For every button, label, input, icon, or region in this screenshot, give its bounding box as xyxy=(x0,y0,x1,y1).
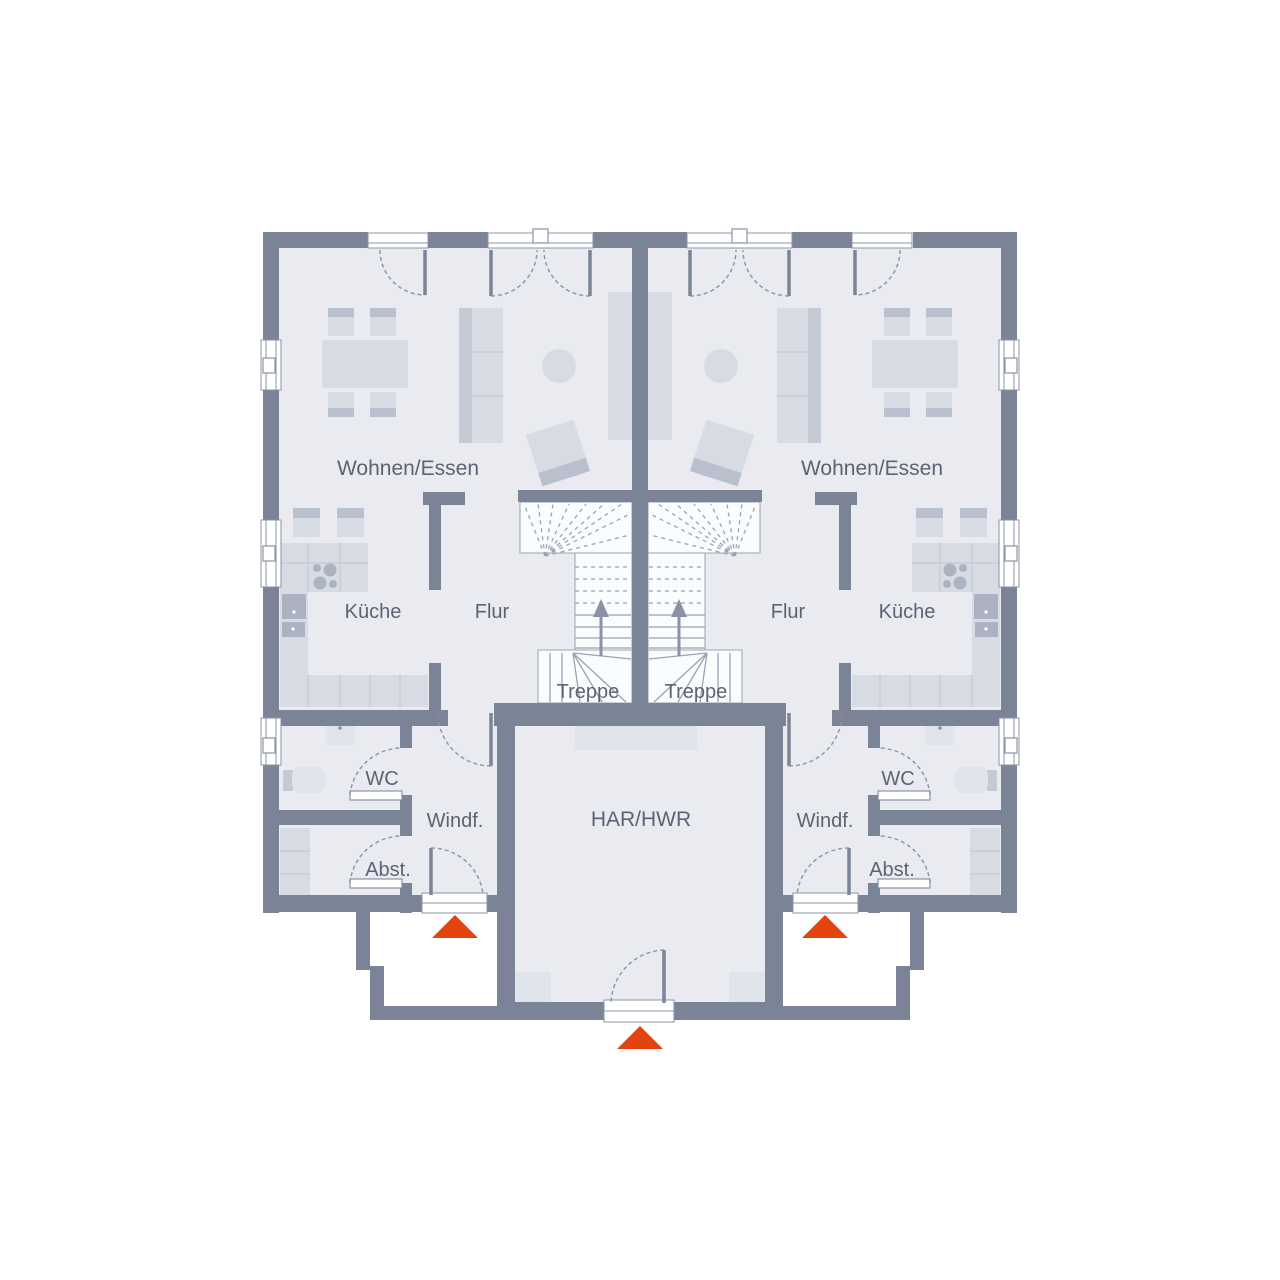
room-floor-utility xyxy=(515,718,765,1002)
room-label-storage-right: Abst. xyxy=(869,859,915,881)
entrance-arrow-icon-right xyxy=(802,915,848,938)
room-label-wc-left: WC xyxy=(365,768,398,790)
dining-table-left xyxy=(322,340,408,388)
room-label-vestibule-left: Windf. xyxy=(427,810,484,832)
coffee-table-right xyxy=(704,349,738,383)
storage-shelf-right xyxy=(970,828,1000,897)
toilet-tank-left xyxy=(283,770,293,791)
room-label-vestibule-right: Windf. xyxy=(797,810,854,832)
floor-plan-page: Wohnen/Essen Wohnen/Essen Küche Küche Fl… xyxy=(0,0,1280,1280)
sofa-left xyxy=(459,308,503,443)
sideboard-right xyxy=(648,292,672,440)
dining-table-right xyxy=(872,340,958,388)
room-label-stairs-right: Treppe xyxy=(665,681,728,703)
room-label-living-left: Wohnen/Essen xyxy=(337,457,479,480)
room-label-wc-right: WC xyxy=(881,768,914,790)
room-label-hall-left: Flur xyxy=(475,601,510,623)
porch-wall-left xyxy=(356,912,370,970)
window-wc-left xyxy=(261,718,281,765)
room-label-storage-left: Abst. xyxy=(365,859,411,881)
room-label-kitchen-left: Küche xyxy=(345,601,402,623)
window-wc-right xyxy=(999,718,1019,765)
floor-plan: Wohnen/Essen Wohnen/Essen Küche Küche Fl… xyxy=(0,0,1280,1280)
sofa-right xyxy=(777,308,821,443)
room-label-kitchen-right: Küche xyxy=(879,601,936,623)
kitchen-appliance-right xyxy=(974,594,998,619)
entrance-arrow-icon-left xyxy=(432,915,478,938)
toilet-right xyxy=(955,767,988,793)
sideboard-left xyxy=(608,292,632,440)
toilet-tank-right xyxy=(987,770,997,791)
toilet-left xyxy=(292,767,325,793)
window-kitchen-right xyxy=(999,520,1019,587)
storage-shelf-left xyxy=(280,828,310,897)
window-living-left xyxy=(261,340,281,390)
porch-wall-right xyxy=(910,912,924,970)
window-living-right xyxy=(999,340,1019,390)
kitchen-appliance-left xyxy=(282,594,306,619)
room-label-utility: HAR/HWR xyxy=(591,808,691,831)
room-label-stairs-left: Treppe xyxy=(557,681,620,703)
party-wall xyxy=(632,248,648,726)
room-label-living-right: Wohnen/Essen xyxy=(801,457,943,480)
window-kitchen-left xyxy=(261,520,281,587)
entrance-arrow-icon-utility xyxy=(617,1026,663,1049)
room-label-hall-right: Flur xyxy=(771,601,806,623)
coffee-table-left xyxy=(542,349,576,383)
